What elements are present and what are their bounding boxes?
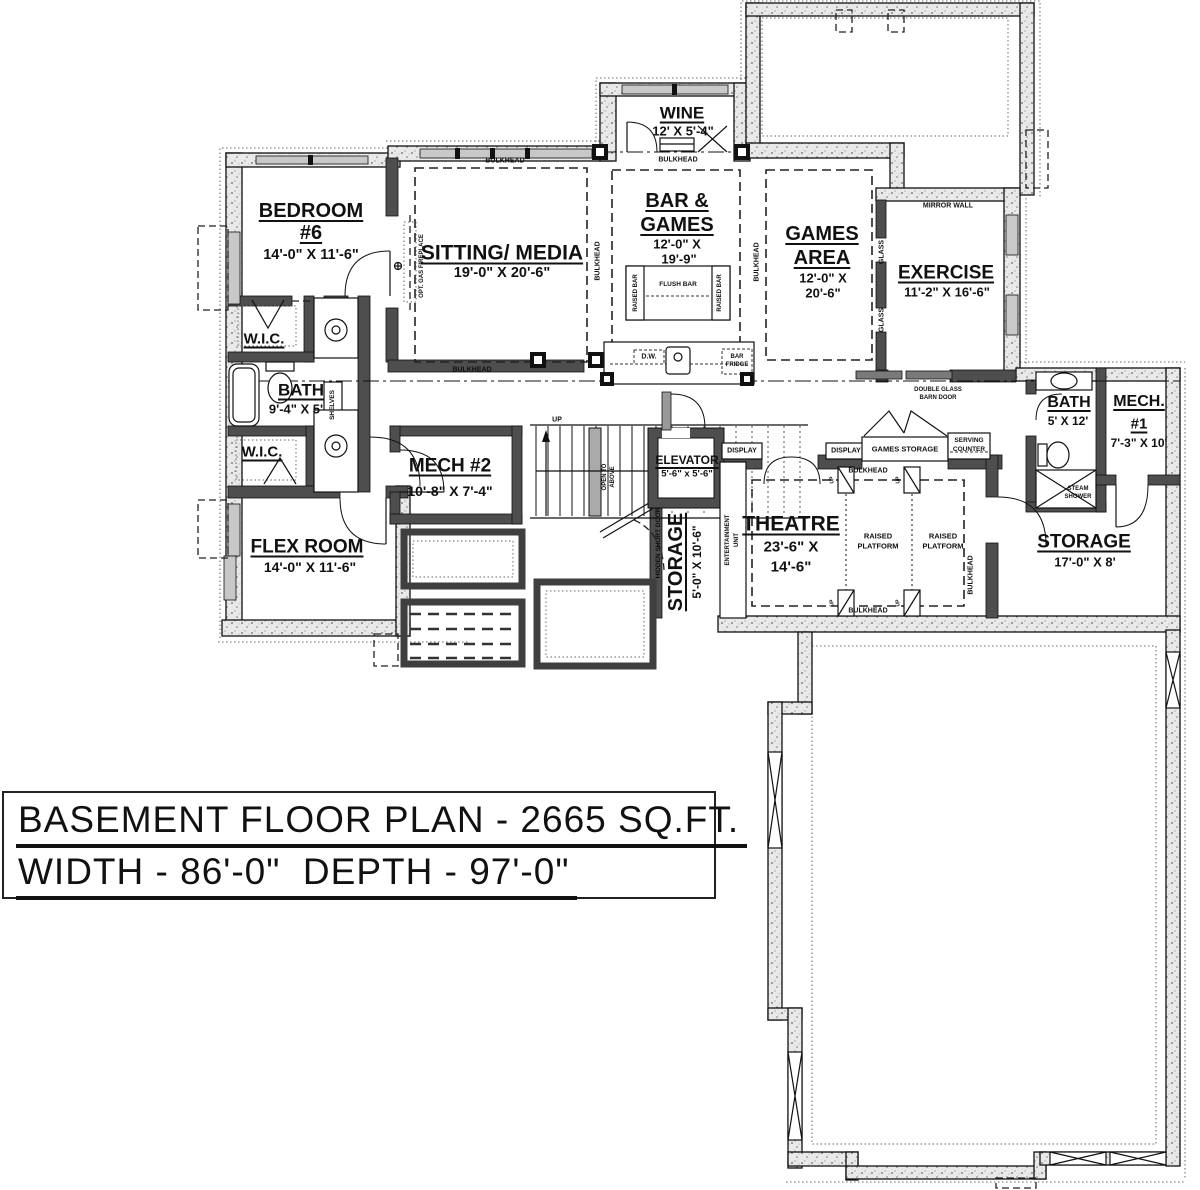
bath-small-name: BATH	[1047, 395, 1090, 411]
flush-bar-label: FLUSH BAR	[659, 282, 697, 289]
raised-platform-right-label-2: PLATFORM	[922, 542, 963, 550]
wic-upper-name: W.I.C.	[244, 332, 285, 347]
mirror-wall-label: MIRROR WALL	[923, 203, 973, 210]
theatre-dims-1: 23'-6" X	[764, 540, 819, 555]
bulkhead-label-theatre-bottom: BULKHEAD	[848, 608, 887, 615]
games-area-dims-2: 20'-6"	[805, 287, 840, 300]
up-label-platform-2: UP	[831, 600, 836, 607]
bar-fridge-label-2: FRIDGE	[726, 362, 749, 368]
theatre-dims-2: 14'-6"	[771, 560, 812, 575]
wine-dims: 12' X 5'-4"	[652, 125, 714, 138]
mech1-name: MECH.	[1113, 394, 1165, 410]
entertainment-unit	[720, 462, 746, 618]
barn-door-label-1: DOUBLE GLASS	[914, 387, 962, 393]
glass-label-lower: GLASS	[879, 308, 886, 332]
mech1-number: #1	[1131, 417, 1148, 432]
opt-gas-fireplace-label: OPT. GAS FIREPLACE	[419, 234, 425, 298]
sitting-media-name: SITTING/ MEDIA	[421, 243, 583, 264]
exercise-dims: 11'-2" X 16'-6"	[904, 286, 990, 299]
raised-bar-label-right: RAISED BAR	[717, 274, 723, 311]
steam-shower-label-2: SHOWER	[1065, 494, 1092, 500]
bar-games-name-2: GAMES	[640, 215, 713, 235]
basement-floor-plan: BEDROOM #6 14'-0" X 11'-6" SITTING/ MEDI…	[0, 0, 1200, 1190]
up-label-platform-1: UP	[831, 477, 836, 484]
sitting-media-dims: 19'-0" X 20'-6"	[454, 266, 550, 281]
wic-lower-name: W.I.C.	[242, 445, 283, 460]
title-block: BASEMENT FLOOR PLAN - 2665 SQ.FT. WIDTH …	[2, 791, 716, 899]
serving-counter-label-1: SERVING	[954, 438, 983, 445]
display-label-right: DISPLAY	[831, 448, 861, 455]
plan-dimensions: WIDTH - 86'-0" DEPTH - 97'-0"	[16, 851, 577, 900]
bedroom6-name: BEDROOM	[259, 201, 363, 221]
dishwasher-label: D.W.	[641, 354, 656, 361]
mech2-dims: 10'-8" X 7'-4"	[407, 484, 492, 498]
display-label-left: DISPLAY	[727, 448, 757, 455]
serving-counter-label-2: COUNTER	[953, 447, 985, 454]
open-to-above-label-2: ABOVE	[610, 466, 616, 487]
raised-platform-left-label-2: PLATFORM	[857, 542, 898, 550]
entertainment-unit-label-1: ENTERTAINMENT	[725, 515, 731, 566]
bulkhead-label-theatre-top: BULKHEAD	[848, 468, 887, 475]
entertainment-unit-label-2: UNIT	[734, 533, 740, 547]
storage-right-dims: 17'-0" X 8'	[1054, 556, 1116, 569]
floorplan-drawing	[0, 0, 1200, 1190]
bedroom6-number: #6	[300, 223, 322, 243]
fireplace	[394, 215, 416, 310]
elevator-name: ELEVATOR	[655, 454, 718, 466]
games-storage-label: GAMES STORAGE	[872, 445, 939, 453]
flex-room-dims: 14'-0" X 11'-6"	[264, 560, 356, 574]
bath-main-name: BATH	[278, 382, 324, 399]
storage-small-dims: 5'-0" X 10'-6"	[691, 525, 703, 598]
raised-platform-right-label-1: RAISED	[929, 532, 957, 540]
bar-games-name-1: BAR &	[645, 191, 708, 211]
up-label-platform-4: UP	[897, 600, 902, 607]
double-glass-barn-door	[856, 371, 952, 379]
open-to-above-label-1: OPEN TO	[602, 464, 608, 491]
bulkhead-label-sitting-right: BULKHEAD	[595, 241, 602, 280]
foundation-x-windows	[768, 652, 1180, 1165]
games-area-name-2: AREA	[794, 248, 851, 268]
plan-title: BASEMENT FLOOR PLAN - 2665 SQ.FT.	[16, 799, 747, 848]
barn-door-label-2: BARN DOOR	[920, 395, 957, 401]
exercise-name: EXERCISE	[898, 264, 994, 283]
bath-small-dims: 5' X 12'	[1048, 415, 1088, 427]
bar-fridge-label-1: BAR	[731, 354, 744, 360]
bulkhead-label-sitting-bottom: BULKHEAD	[452, 367, 491, 374]
elevator-shaft	[648, 392, 724, 508]
mech2-name: MECH #2	[409, 457, 491, 476]
mech1-dims: 7'-3" X 10'	[1111, 437, 1168, 449]
up-label-platform-3: UP	[897, 477, 902, 484]
flex-room-name: FLEX ROOM	[251, 538, 364, 557]
raised-platform-left-label-1: RAISED	[864, 532, 892, 540]
bulkhead-label-sitting-top: BULKHEAD	[485, 158, 524, 165]
bar-games-dims-1: 12'-0" X	[653, 238, 701, 251]
bulkhead-label-theatre-right: BULKHEAD	[968, 555, 975, 594]
glass-label-upper: GLASS	[879, 240, 886, 264]
steam-shower-label-1: STEAM	[1068, 486, 1089, 492]
elevator-dims: 5'-6" x 5'-6"	[661, 469, 713, 479]
raised-bar-label-left: RAISED BAR	[633, 274, 639, 311]
storage-small-name: STORAGE	[666, 513, 686, 612]
flush-bar-unit	[626, 266, 730, 320]
hidden-short-door-label: HIDDEN SHORT DOOR	[656, 508, 663, 579]
storage-right-name: STORAGE	[1037, 533, 1131, 552]
games-area-name-1: GAMES	[785, 224, 858, 244]
bedroom6-dims: 14'-0" X 11'-6"	[263, 248, 359, 263]
bulkhead-label-wine: BULKHEAD	[658, 157, 697, 164]
wine-name: WINE	[660, 105, 704, 122]
bulkhead-label-bar-right: BULKHEAD	[754, 242, 761, 281]
shelves-label: SHELVES	[330, 390, 337, 420]
games-area-dims-1: 12'-0" X	[799, 272, 847, 285]
slab-boxes	[404, 532, 653, 666]
theatre-name: THEATRE	[742, 514, 840, 535]
up-label-stairs: UP	[552, 417, 562, 424]
bath-main-dims: 9'-4" X 5'	[269, 403, 323, 416]
bar-games-dims-2: 19'-9"	[661, 253, 696, 266]
